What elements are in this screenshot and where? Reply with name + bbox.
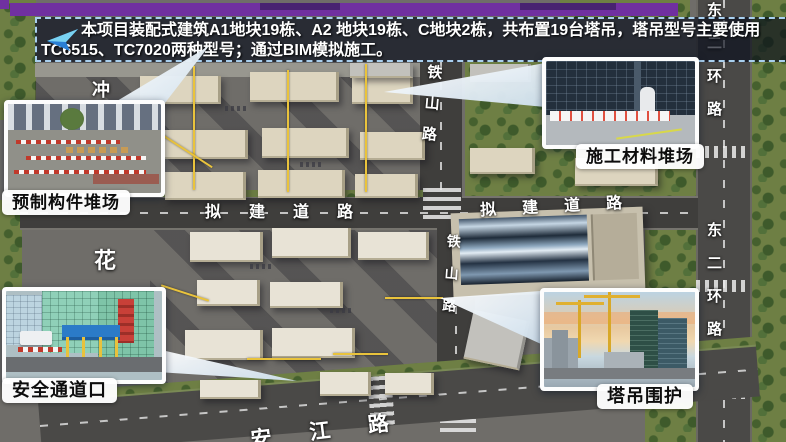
building — [185, 330, 263, 360]
red-walkway — [93, 174, 159, 184]
callout-photo-precast-yard — [4, 100, 165, 197]
building — [197, 280, 260, 306]
building — [190, 232, 263, 262]
paper-plane-arrow-icon — [46, 28, 80, 53]
window-dots — [330, 308, 352, 313]
crane-line — [287, 70, 289, 192]
callout-label-material-yard: 施工材料堆场 — [576, 144, 704, 169]
title-banner: 本项目装配式建筑A1地块19栋、A2 地块19栋、C地块2栋，共布置19台塔吊，… — [35, 17, 786, 62]
tower-facade-grid — [546, 61, 695, 115]
ground — [544, 368, 695, 379]
crane-line — [247, 358, 321, 360]
building — [258, 170, 345, 198]
striped-fence — [26, 156, 146, 160]
callout-label-safety-gate: 安全通道口 — [2, 378, 117, 403]
background-buildings — [8, 104, 161, 130]
window-dots — [250, 264, 272, 269]
callout-photo-safety-gate — [2, 287, 166, 384]
building — [470, 64, 531, 82]
callout-label-precast-yard: 预制构件堆场 — [2, 190, 130, 215]
window-dots — [225, 106, 247, 111]
crane-mast — [578, 300, 581, 358]
building — [272, 228, 351, 258]
building — [270, 282, 343, 308]
building — [358, 232, 429, 260]
glass-building — [658, 318, 687, 368]
white-tent — [20, 331, 52, 345]
road-label-ring-bottom: 东二环路 — [703, 222, 724, 354]
slide-bim-site-plan: 铁山路 铁山路 拟建道路 拟建道路 东二环路 东二环路 花 冲 安江路 预制构件… — [0, 0, 786, 442]
callout-label-crane-fence: 塔吊围护 — [597, 384, 693, 409]
building — [320, 372, 371, 396]
building — [250, 72, 339, 102]
banner-line-1: 本项目装配式建筑A1地块19栋、A2 地块19栋、C地块2栋，共布置19台塔吊，… — [37, 19, 786, 41]
striped-barrier — [18, 347, 62, 352]
building — [385, 373, 434, 395]
precast-racks — [66, 147, 128, 153]
low-building — [604, 352, 644, 368]
callout-photo-material-yard — [542, 57, 699, 149]
building — [470, 148, 535, 174]
road-label-proposed-west: 拟建道路 — [205, 198, 381, 222]
building — [200, 380, 261, 399]
background-building — [552, 330, 568, 368]
crane-fence-photo — [544, 292, 695, 387]
building — [262, 128, 349, 158]
building — [165, 172, 246, 200]
purple-corner-square — [0, 0, 9, 9]
road-label-chong: 冲 — [92, 76, 110, 102]
top-bar-segment — [520, 3, 616, 10]
precast-yard-photo — [8, 104, 161, 193]
striped-fence — [16, 140, 120, 144]
building-annex — [591, 213, 639, 281]
vault-roof — [459, 215, 589, 285]
crane-jib — [584, 295, 640, 298]
purple-top-bar — [10, 3, 678, 16]
material-yard-photo — [546, 61, 695, 145]
crane-line — [193, 66, 195, 190]
crane-mast — [608, 292, 611, 358]
blue-canopy — [62, 325, 120, 340]
crane-line — [365, 64, 367, 192]
top-bar-segment — [260, 3, 340, 10]
window-dots — [300, 162, 322, 167]
safety-gate-photo — [6, 291, 162, 380]
building — [350, 63, 413, 78]
crane-line — [333, 353, 388, 355]
ground — [6, 357, 162, 372]
crane-jib — [556, 302, 604, 305]
road-label-hua: 花 — [94, 243, 116, 275]
crane-line — [385, 297, 443, 299]
tree — [60, 108, 84, 130]
callout-photo-crane-fence — [540, 288, 699, 391]
material-fence — [550, 111, 670, 121]
building — [352, 78, 413, 104]
red-hoist — [118, 299, 134, 343]
